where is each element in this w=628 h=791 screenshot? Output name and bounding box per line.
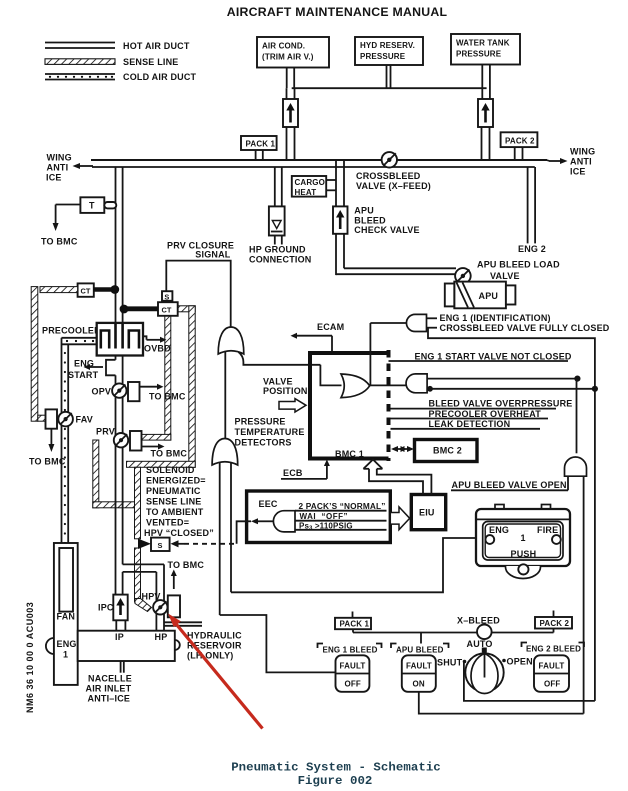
- svg-text:BMC 2: BMC 2: [433, 446, 462, 456]
- svg-text:IP: IP: [115, 632, 124, 642]
- svg-text:HEAT: HEAT: [295, 188, 317, 197]
- svg-text:TO AMBIENT: TO AMBIENT: [146, 507, 204, 517]
- svg-text:OPEN: OPEN: [507, 656, 533, 666]
- svg-text:FAN: FAN: [57, 612, 76, 622]
- svg-text:APU: APU: [479, 291, 499, 301]
- svg-text:DETECTORS: DETECTORS: [235, 437, 292, 447]
- svg-text:ECAM: ECAM: [317, 322, 344, 332]
- svg-text:CT: CT: [162, 306, 172, 315]
- svg-text:PACK 1: PACK 1: [246, 140, 276, 149]
- svg-text:ENG 1 START VALVE NOT CLOSED: ENG 1 START VALVE NOT CLOSED: [415, 352, 572, 362]
- svg-text:HP GROUND: HP GROUND: [249, 244, 306, 254]
- svg-text:TO BMC: TO BMC: [149, 391, 186, 401]
- svg-text:NM6 36 10 00 0 ACU003: NM6 36 10 00 0 ACU003: [25, 602, 35, 713]
- svg-text:ICE: ICE: [46, 173, 62, 183]
- svg-text:Figure 002: Figure 002: [298, 774, 373, 788]
- svg-text:TEMPERATURE: TEMPERATURE: [235, 427, 305, 437]
- svg-text:SIGNAL: SIGNAL: [195, 250, 231, 260]
- svg-text:OPV: OPV: [92, 386, 112, 396]
- svg-text:T: T: [89, 201, 95, 211]
- svg-text:SENSE LINE: SENSE LINE: [123, 57, 179, 67]
- svg-text:VENTED=: VENTED=: [146, 518, 189, 528]
- svg-text:FAULT: FAULT: [539, 662, 565, 671]
- svg-text:ENG 2: ENG 2: [518, 244, 546, 254]
- svg-text:ANTI–ICE: ANTI–ICE: [88, 694, 131, 704]
- svg-text:OFF: OFF: [345, 680, 361, 689]
- svg-text:TO BMC: TO BMC: [168, 560, 205, 570]
- svg-text:FAULT: FAULT: [406, 662, 432, 671]
- svg-text:TO BMC: TO BMC: [29, 457, 66, 467]
- svg-text:HPV “CLOSED”: HPV “CLOSED”: [144, 528, 214, 538]
- svg-text:PUSH: PUSH: [511, 549, 537, 559]
- svg-text:VALVE (X–FEED): VALVE (X–FEED): [356, 181, 431, 191]
- svg-text:ENG 1 BLEED: ENG 1 BLEED: [323, 645, 378, 654]
- svg-text:TO BMC: TO BMC: [41, 237, 78, 247]
- svg-text:AIR COND.: AIR COND.: [262, 42, 305, 51]
- svg-text:OVBD: OVBD: [144, 343, 171, 353]
- svg-text:APU: APU: [354, 206, 374, 216]
- svg-text:PRESSURE: PRESSURE: [456, 50, 502, 59]
- svg-text:Pneumatic System - Schematic: Pneumatic System - Schematic: [231, 761, 441, 775]
- svg-text:ON: ON: [413, 680, 425, 689]
- svg-text:X–BLEED: X–BLEED: [457, 615, 500, 625]
- svg-text:SOLENOID: SOLENOID: [146, 465, 195, 475]
- svg-text:CROSSBLEED VALVE FULLY CLOSED: CROSSBLEED VALVE FULLY CLOSED: [440, 323, 610, 333]
- svg-text:(TRIM AIR V.): (TRIM AIR V.): [262, 53, 314, 62]
- svg-text:TO BMC: TO BMC: [151, 449, 188, 459]
- svg-text:BLEED VALVE OVERPRESSURE: BLEED VALVE OVERPRESSURE: [429, 399, 573, 409]
- svg-text:LEAK DETECTION: LEAK DETECTION: [429, 419, 511, 429]
- svg-text:ICE: ICE: [570, 167, 586, 177]
- svg-text:HP: HP: [155, 632, 168, 642]
- svg-text:2 PACK’S “NORMAL”: 2 PACK’S “NORMAL”: [299, 502, 386, 511]
- svg-text:PACK 2: PACK 2: [505, 137, 535, 146]
- svg-text:CT: CT: [81, 287, 91, 296]
- svg-text:AIRCRAFT MAINTENANCE MANUAL: AIRCRAFT MAINTENANCE MANUAL: [227, 5, 448, 19]
- svg-text:BMC 1: BMC 1: [335, 449, 364, 459]
- svg-text:VALVE: VALVE: [490, 271, 520, 281]
- svg-text:NACELLE: NACELLE: [88, 674, 132, 684]
- svg-text:VALVE: VALVE: [263, 377, 293, 387]
- svg-text:HYD RESERV.: HYD RESERV.: [360, 41, 415, 50]
- svg-text:1: 1: [63, 650, 68, 660]
- svg-text:PRESSURE: PRESSURE: [235, 417, 286, 427]
- svg-text:ENERGIZED=: ENERGIZED=: [146, 476, 206, 486]
- svg-text:PNEUMATIC: PNEUMATIC: [146, 486, 201, 496]
- svg-text:WING: WING: [570, 147, 595, 157]
- svg-text:1: 1: [521, 533, 526, 543]
- svg-text:PRESSURE: PRESSURE: [360, 52, 406, 61]
- svg-text:ANTI: ANTI: [47, 163, 69, 173]
- svg-text:ECB: ECB: [283, 468, 303, 478]
- svg-text:PRECOOLER OVERHEAT: PRECOOLER OVERHEAT: [429, 409, 542, 419]
- svg-text:APU BLEED VALVE OPEN: APU BLEED VALVE OPEN: [452, 480, 567, 490]
- svg-text:S: S: [158, 541, 163, 550]
- svg-text:FAV: FAV: [76, 414, 93, 424]
- svg-text:EEC: EEC: [259, 499, 278, 509]
- svg-text:WING: WING: [47, 153, 72, 163]
- svg-text:BLEED: BLEED: [354, 215, 386, 225]
- svg-text:APU BLEED: APU BLEED: [396, 645, 444, 654]
- svg-text:SENSE LINE: SENSE LINE: [146, 497, 202, 507]
- svg-text:CONNECTION: CONNECTION: [249, 255, 312, 265]
- svg-text:FAULT: FAULT: [340, 662, 366, 671]
- svg-text:WATER TANK: WATER TANK: [456, 39, 510, 48]
- svg-text:PACK 1: PACK 1: [340, 620, 370, 629]
- svg-text:POSITION: POSITION: [263, 386, 308, 396]
- svg-text:COLD AIR DUCT: COLD AIR DUCT: [123, 72, 197, 82]
- svg-text:SHUT: SHUT: [437, 657, 463, 667]
- svg-text:ENG 1 (IDENTIFICATION): ENG 1 (IDENTIFICATION): [440, 313, 551, 323]
- svg-text:FIRE: FIRE: [537, 525, 558, 535]
- svg-text:(LH ONLY): (LH ONLY): [187, 651, 233, 661]
- svg-text:PRECOOLER: PRECOOLER: [42, 326, 101, 336]
- svg-text:PACK 2: PACK 2: [540, 619, 570, 628]
- svg-text:OFF: OFF: [544, 680, 560, 689]
- svg-text:CHECK VALVE: CHECK VALVE: [354, 225, 419, 235]
- svg-text:AUTO: AUTO: [467, 639, 493, 649]
- svg-text:EIU: EIU: [419, 508, 435, 518]
- svg-text:START: START: [68, 370, 99, 380]
- svg-text:WAI “OFF”: WAI “OFF”: [300, 512, 349, 521]
- svg-text:HYDRAULIC: HYDRAULIC: [187, 631, 242, 641]
- svg-text:S: S: [164, 292, 169, 301]
- svg-text:HOT AIR DUCT: HOT AIR DUCT: [123, 41, 190, 51]
- svg-text:ENG: ENG: [57, 639, 77, 649]
- svg-text:IPC: IPC: [98, 603, 114, 613]
- svg-text:CARGO: CARGO: [295, 178, 326, 187]
- svg-text:APU BLEED LOAD: APU BLEED LOAD: [477, 260, 560, 270]
- svg-text:ENG: ENG: [489, 525, 509, 535]
- svg-text:CROSSBLEED: CROSSBLEED: [356, 171, 421, 181]
- svg-text:ENG: ENG: [74, 358, 94, 368]
- svg-text:PRV: PRV: [96, 426, 115, 436]
- svg-text:ANTI: ANTI: [570, 157, 592, 167]
- svg-text:ENG 2 BLEED: ENG 2 BLEED: [526, 644, 581, 653]
- svg-text:AIR INLET: AIR INLET: [86, 684, 132, 694]
